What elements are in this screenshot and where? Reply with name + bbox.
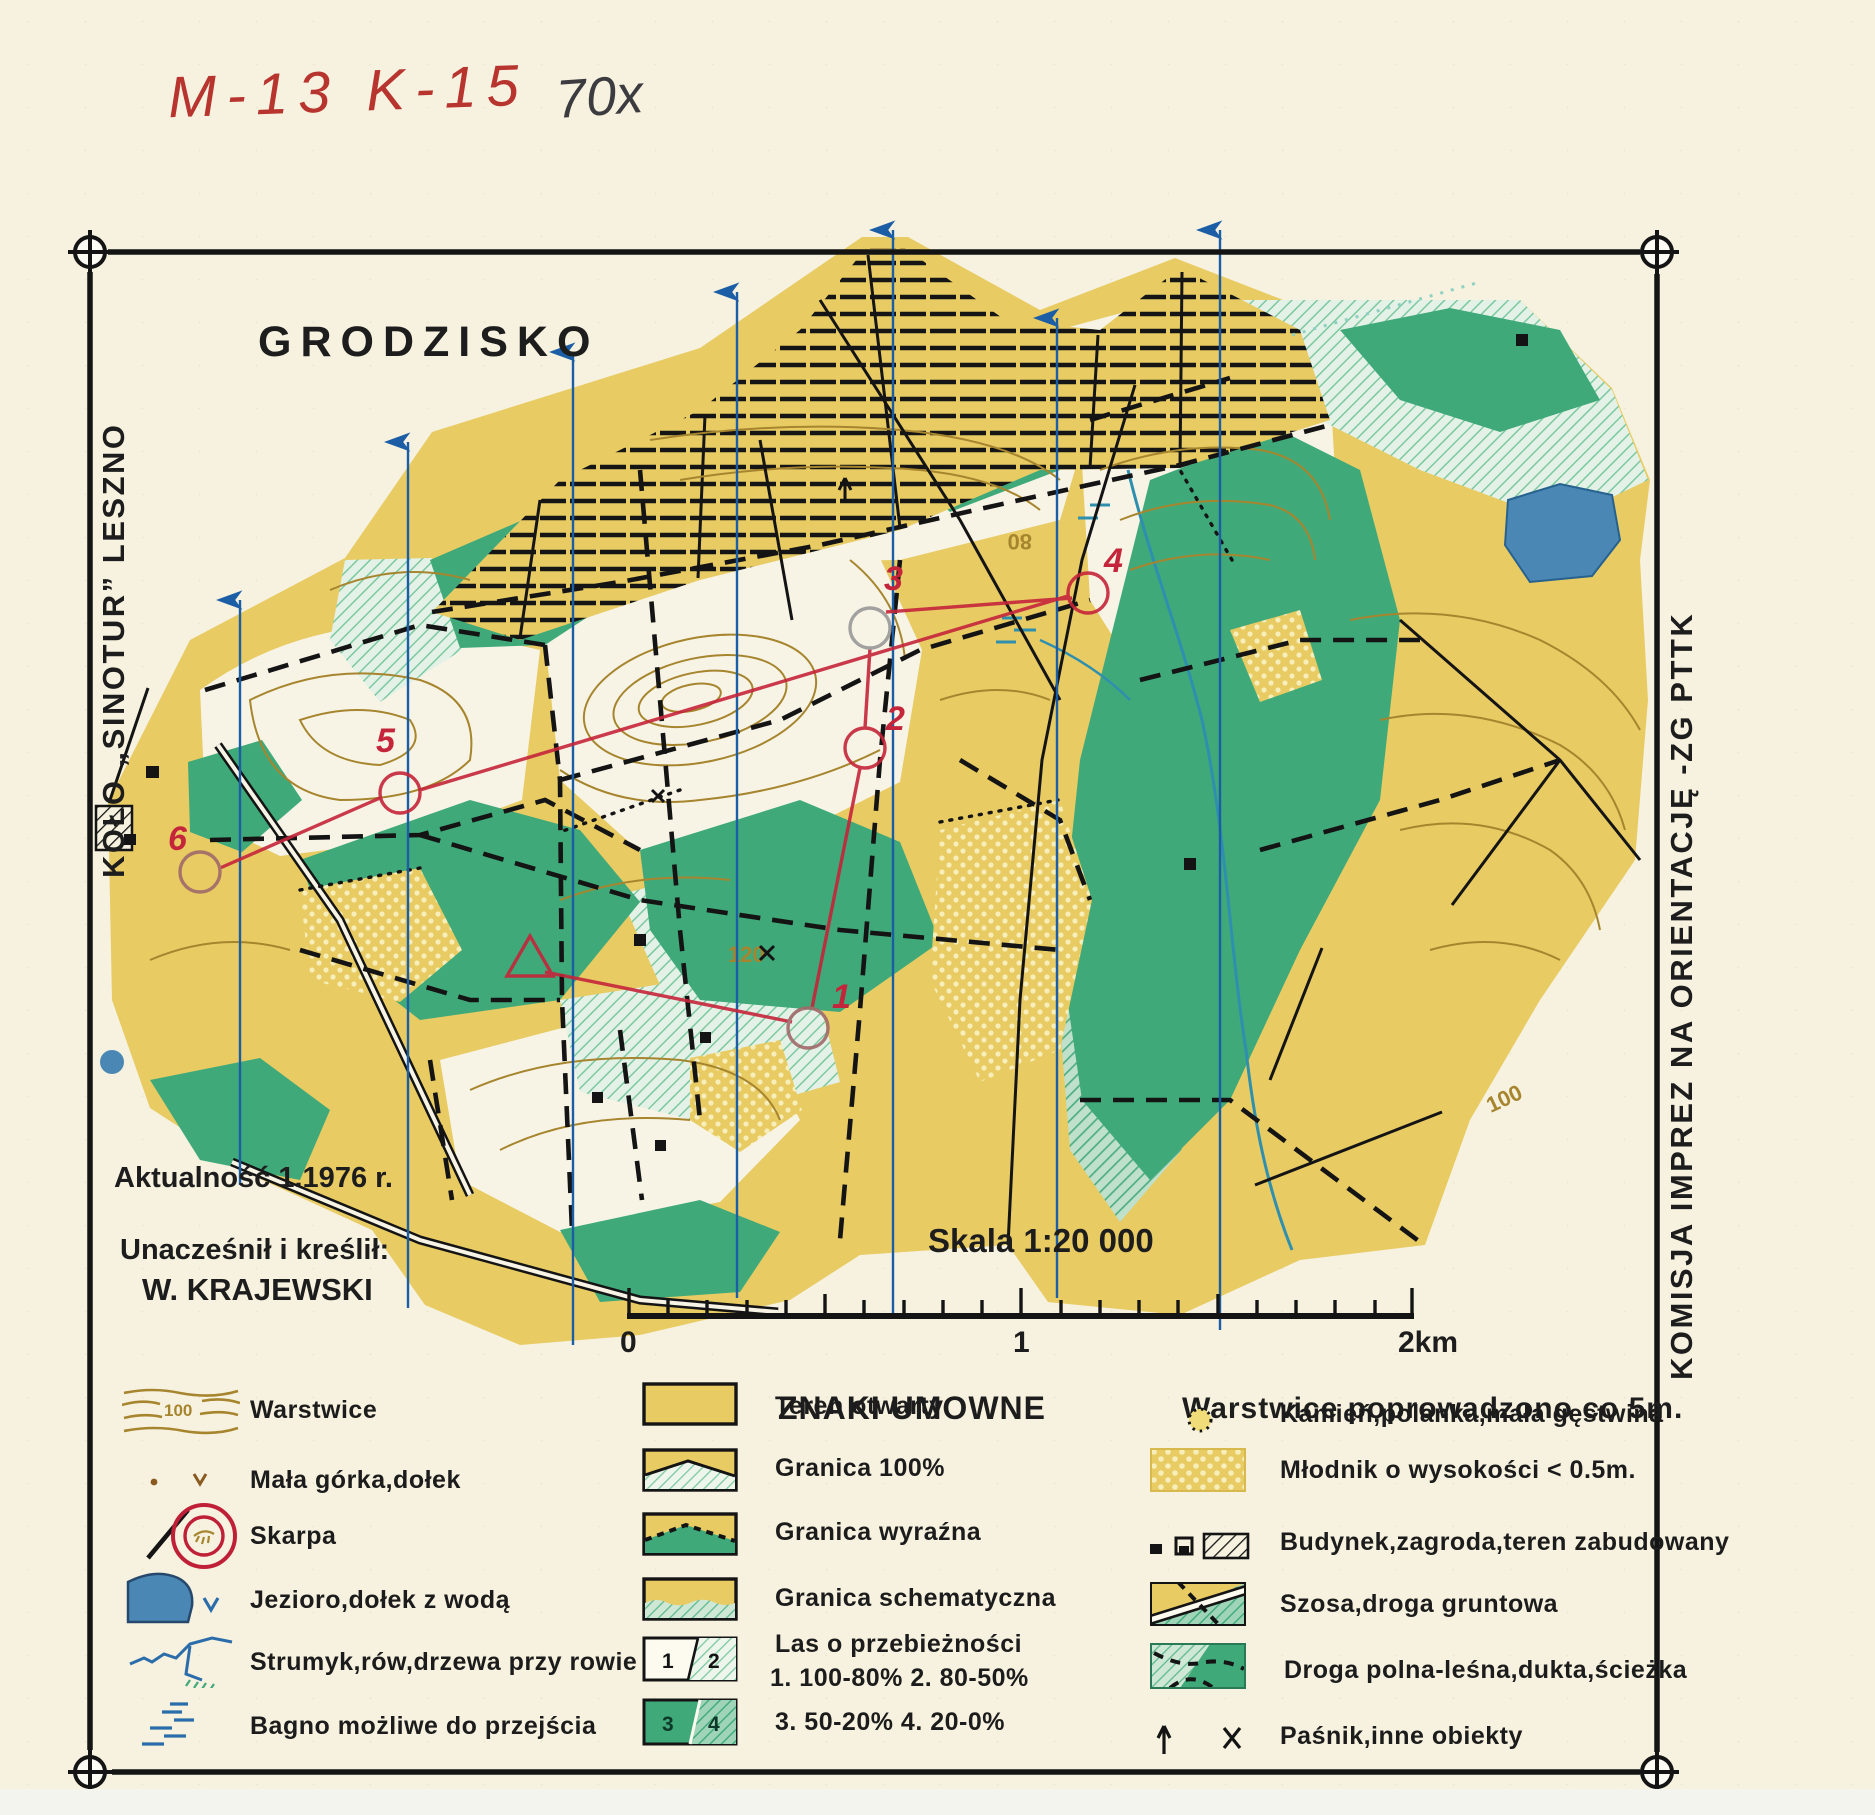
forest-path-swatch <box>1150 1643 1246 1694</box>
scarp-icon <box>140 1496 250 1579</box>
runnability-12-swatch: 1 2 <box>642 1636 738 1687</box>
svg-text:120: 120 <box>728 942 765 967</box>
handwritten-note: 70x <box>554 63 645 131</box>
svg-text:2: 2 <box>708 1650 720 1673</box>
svg-text:100: 100 <box>164 1401 192 1420</box>
road-swatch <box>1150 1582 1246 1631</box>
stream-icon <box>128 1630 248 1693</box>
svg-text:3: 3 <box>662 1713 674 1736</box>
scale-label: Skala 1:20 000 <box>928 1222 1154 1260</box>
svg-text:1: 1 <box>662 1650 674 1673</box>
feeder-objects-icon <box>1152 1718 1262 1763</box>
handwritten-code: M-13 K-15 <box>167 52 530 132</box>
right-margin-text: KOMISJA IMPREZ NA ORIENTACJĘ -ZG PTTK <box>1664 640 1700 1380</box>
scale-tick-0: 0 <box>620 1326 637 1360</box>
svg-text:4: 4 <box>708 1713 720 1736</box>
scale-tick-1: 1 <box>1013 1326 1030 1360</box>
marsh-icon <box>136 1698 226 1755</box>
scan-edge <box>0 1789 1875 1815</box>
building-icon <box>1146 1522 1256 1567</box>
map-title: GRODZISKO <box>258 318 599 367</box>
drafted-by: W. KRAJEWSKI <box>142 1272 373 1308</box>
legend-label: Granica wyraźna <box>775 1518 981 1547</box>
svg-text:1: 1 <box>832 978 851 1016</box>
svg-text:4: 4 <box>1103 542 1123 580</box>
legend-label: Skarpa <box>250 1522 336 1551</box>
lake-icon <box>126 1568 236 1629</box>
boundary-100-swatch <box>642 1448 738 1497</box>
svg-text:3: 3 <box>884 560 903 598</box>
legend-label: Paśnik,inne obiekty <box>1280 1722 1523 1751</box>
legend-label: Warstwice <box>250 1396 377 1425</box>
legend-label: Strumyk,rów,drzewa przy rowie <box>250 1648 637 1677</box>
scale-tick-2km: 2km <box>1398 1326 1458 1360</box>
svg-text:2: 2 <box>885 700 905 738</box>
runnability-34-swatch: 3 4 <box>642 1698 738 1751</box>
boundary-distinct-swatch <box>642 1512 738 1561</box>
legend-sublabel: 1. 100-80% 2. 80-50% <box>770 1664 1029 1693</box>
currency-note: Aktualność 1.1976 r. <box>114 1162 393 1195</box>
svg-text:6: 6 <box>168 820 188 858</box>
legend-label: Młodnik o wysokości < 0.5m. <box>1280 1456 1636 1485</box>
legend-label: 3. 50-20% 4. 20-0% <box>775 1708 1005 1737</box>
legend-label: Granica 100% <box>775 1454 945 1483</box>
legend-label: Granica schematyczna <box>775 1584 1056 1613</box>
svg-text:80: 80 <box>1008 529 1032 554</box>
legend-label: Szosa,droga gruntowa <box>1280 1590 1558 1619</box>
legend-label: Teren otwarty <box>775 1392 944 1421</box>
open-terrain-swatch <box>642 1382 738 1431</box>
legend-label: Jezioro,dołek z wodą <box>250 1586 510 1615</box>
boundary-schematic-swatch <box>642 1577 738 1626</box>
legend-label: Las o przebieżności <box>775 1630 1022 1659</box>
legend-label: Budynek,zagroda,teren zabudowany <box>1280 1528 1729 1557</box>
legend-label: Kamień,polanka,mała gęstwina <box>1280 1400 1664 1429</box>
legend-label: Droga polna-leśna,dukta,ścieżka <box>1284 1656 1687 1685</box>
legend-label: Bagno możliwe do przejścia <box>250 1712 596 1741</box>
legend-label: Mała górka,dołek <box>250 1466 461 1495</box>
svg-text:5: 5 <box>376 722 396 760</box>
scanned-map-page: 80 120 100 <box>0 0 1875 1815</box>
drafted-label: Unacześnił i kreślił: <box>120 1234 389 1267</box>
left-margin-text: KOŁO „SINOTUR” LESZNO <box>96 278 132 878</box>
young-forest-swatch <box>1150 1448 1246 1497</box>
contour-lines-icon: 100 <box>122 1385 240 1442</box>
stone-clearing-icon <box>1178 1400 1222 1445</box>
